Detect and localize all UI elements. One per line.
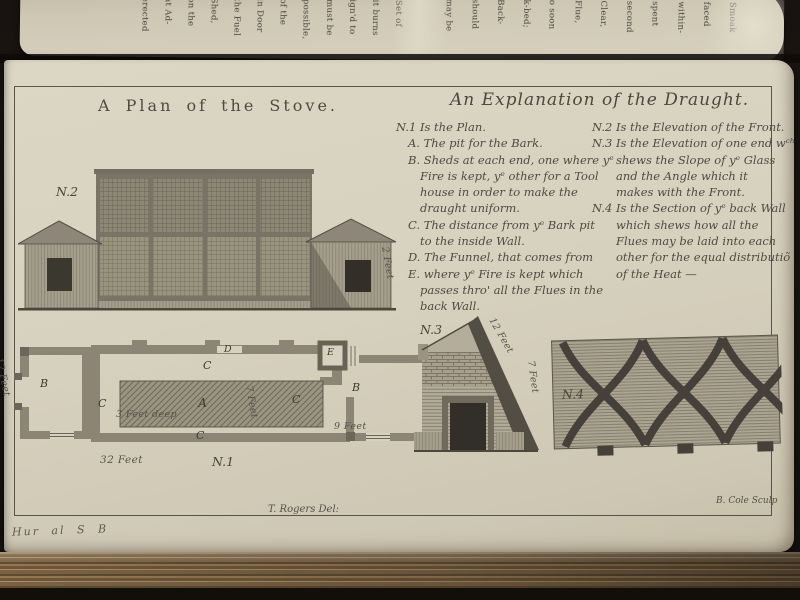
explanation-line: which shews how all the: [592, 217, 792, 233]
explanation-line: to the inside Wall.: [396, 233, 596, 249]
rotated-text-fragment: o soon: [547, 0, 556, 48]
rotated-text-fragment: in Door: [255, 0, 264, 46]
explanation-line: N.3 Is the Elevation of one end wᶜʰ: [592, 135, 792, 151]
explanation-line: N.4 Is the Section of yᵉ back Wall: [592, 200, 792, 216]
rotated-text-column-group: erected at Ad- on the Shed, the Fuel in …: [140, 0, 403, 48]
figure-n1-label: N.1: [212, 454, 234, 469]
page-fold-highlight: [392, 0, 451, 61]
plan-corridor-label: C: [292, 393, 300, 406]
figure-n4-label: N.4: [562, 386, 584, 402]
draughtsman-credit: T. Rogers Del:: [268, 504, 339, 515]
dimension-length: 32 Feet: [100, 454, 143, 466]
rotated-text-fragment: erected: [140, 0, 149, 45]
rotated-text-fragment: k-bed;: [521, 0, 530, 48]
figure-end-elevation: N.3 12 Feet: [412, 310, 544, 460]
plan-room-b-label: B: [40, 377, 48, 390]
explanation-line: Fire is kept, yᵉ other for a Tool: [396, 168, 596, 184]
rotated-text-fragment: Shed,: [209, 0, 218, 46]
plate-title: A Plan of the Stove.: [98, 96, 338, 115]
dimension-room: 9 Feet: [334, 421, 367, 432]
rotated-text-fragment: of the: [278, 0, 287, 47]
plan-corridor-label: C: [98, 397, 106, 410]
figure-front-elevation: N.2 2 Feet: [18, 160, 398, 322]
explanation-line: Flues may be laid into each: [592, 233, 792, 249]
plan-corridor-label: C: [196, 429, 204, 442]
dimension-pit-depth: 3 Feet deep: [116, 409, 177, 420]
explanation-line: other for the equal distributiõ: [592, 249, 792, 265]
rotated-text-fragment: on the: [186, 0, 195, 45]
rotated-text-fragment: at Ad-: [163, 0, 172, 45]
explanation-line: house in order to make the: [396, 184, 596, 200]
explanation-line: draught uniform.: [396, 200, 596, 216]
figure-n3-label: N.3: [420, 322, 442, 337]
plan-room-b-label: B: [352, 381, 360, 394]
explanation-line: A. The pit for the Bark.: [396, 135, 596, 151]
page-curl-highlight: [708, 0, 785, 62]
explanation-title: An Explanation of the Draught.: [450, 90, 749, 110]
rotated-text-fragment: must be: [324, 0, 333, 47]
plan-furnace-label: E: [327, 347, 334, 358]
plan-pit-label: A: [198, 395, 207, 410]
engraver-credit: B. Cole Sculp: [716, 496, 777, 506]
explanation-line: D. The Funnel, that comes from: [396, 249, 596, 265]
plan-drawing: [8, 333, 438, 473]
rotated-text-fragment: Clear,: [598, 0, 607, 48]
explanation-right-column: N.2 Is the Elevation of the Front. N.3 I…: [592, 119, 792, 282]
explanation-line: shews the Slope of yᵉ Glass: [592, 152, 792, 168]
handwritten-inscription: Hur al S B: [12, 522, 109, 538]
figure-n2-label: N.2: [56, 184, 78, 199]
table-shadow: [0, 588, 800, 600]
figure-flue-section: N.4: [548, 329, 783, 461]
explanation-line: of the Heat —: [592, 266, 792, 282]
explanation-line: N.1 Is the Plan.: [396, 119, 596, 135]
explanation-line: N.2 Is the Elevation of the Front.: [592, 119, 792, 135]
rotated-text-fragment: Flue,: [573, 0, 582, 48]
explanation-line: B. Sheds at each end, one where yᵉ: [396, 152, 596, 168]
plan-corridor-label: C: [203, 359, 211, 372]
rotated-text-column-group: may be should Back- k-bed; o soon Flue, …: [444, 0, 737, 50]
fore-edge-shading: [0, 552, 800, 590]
rotated-text-fragment: spent: [650, 1, 659, 49]
figure-plan: B C C A 7 Feet 3 Feet deep C C D E B 9 F…: [8, 333, 438, 473]
rotated-text-fragment: ign'd to: [347, 0, 356, 47]
explanation-line: E. where yᵉ Fire is kept which: [396, 266, 596, 282]
book-photograph: erected at Ad- on the Shed, the Fuel in …: [0, 0, 800, 600]
plan-wall-label: D: [224, 344, 232, 355]
rotated-text-fragment: Back-: [495, 0, 504, 47]
rotated-text-fragment: it burns: [370, 0, 379, 48]
explanation-line: makes with the Front.: [592, 184, 792, 200]
plate-page: A Plan of the Stove. An Explanation of t…: [4, 60, 794, 552]
explanation-left-column: N.1 Is the Plan. A. The pit for the Bark…: [396, 119, 596, 315]
rotated-text-fragment: second: [624, 1, 633, 49]
upper-page-paper: erected at Ad- on the Shed, the Fuel in …: [20, 0, 785, 62]
explanation-line: C. The distance from yᵉ Bark pit: [396, 217, 596, 233]
rotated-text-fragment: the Fuel: [232, 0, 241, 46]
rotated-text-fragment: within-: [676, 1, 685, 49]
upper-page-edge: erected at Ad- on the Shed, the Fuel in …: [0, 0, 800, 62]
explanation-line: and the Angle which it: [592, 168, 792, 184]
rotated-text-fragment: should: [469, 0, 478, 47]
rotated-text-fragment: possible,: [301, 0, 310, 47]
explanation-line: passes thro' all the Flues in the: [396, 282, 596, 298]
book-fore-edge: [0, 552, 800, 590]
